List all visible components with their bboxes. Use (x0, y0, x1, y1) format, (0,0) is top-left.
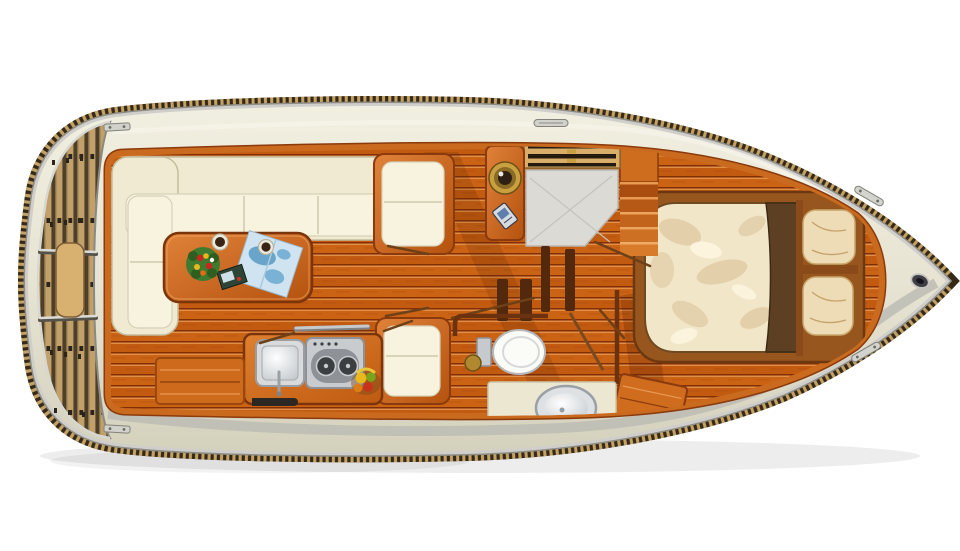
boat-floorplan-canvas (0, 0, 960, 551)
stern-hinge (104, 123, 130, 131)
drawer-recess (252, 398, 298, 406)
saloon-step (156, 358, 244, 404)
deck-latch (534, 120, 568, 127)
pillow (803, 210, 855, 264)
yacht-floorplan (0, 0, 960, 551)
coffee-cup (212, 234, 228, 250)
pillow (803, 277, 853, 335)
side-chair-forward (374, 154, 454, 254)
coffee-cup (259, 240, 274, 255)
flower-bouquet (186, 247, 220, 281)
dining-table (164, 231, 312, 302)
boarding-step (56, 243, 84, 317)
porthole-icon (489, 162, 521, 194)
pillow-divider (800, 265, 858, 274)
steps (620, 182, 658, 256)
stern-hinge (104, 425, 130, 433)
bed-frame-strip (796, 200, 803, 356)
toilet-pump (465, 355, 481, 371)
